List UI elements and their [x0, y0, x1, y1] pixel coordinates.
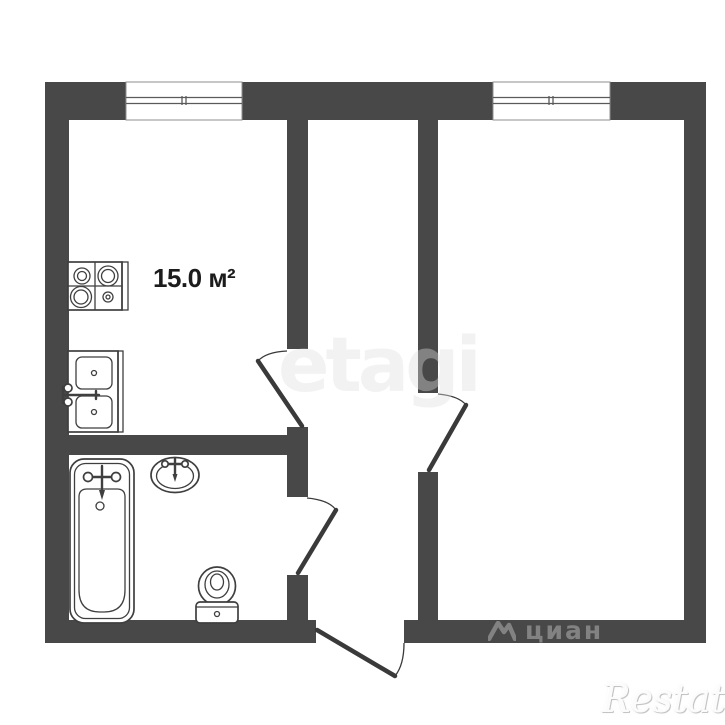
stove-icon [68, 262, 128, 310]
bathtub-icon [70, 459, 134, 623]
kitchen-sink-icon [63, 351, 123, 432]
wall-hall-room-upper [418, 120, 438, 393]
window-symbol-kitchen [126, 82, 242, 120]
wall-hall-room-lower [418, 472, 438, 620]
wall-bottom-right [404, 620, 706, 643]
wall-kitchen-hall-upper [287, 120, 308, 349]
wall-right [684, 120, 706, 643]
wall-left [45, 120, 69, 643]
toilet-icon [196, 567, 238, 623]
door-symbol-kitchen [258, 351, 302, 426]
wall-kitchen-hall-lower [287, 575, 308, 620]
washbasin-icon [151, 458, 199, 493]
door-symbol-entrance [317, 630, 404, 676]
wall-kitchen-hall-middle [287, 427, 308, 497]
kitchen-area-label: 15.0 м² [153, 263, 235, 294]
walls [45, 82, 706, 643]
door-symbol-room [429, 394, 466, 470]
door-symbol-bathroom [298, 498, 336, 573]
window-symbol-room [493, 82, 610, 120]
wall-kitchen-bathroom-divider [69, 435, 287, 455]
floor-plan: 15.0 м² etagi etagi циан циан Restate [0, 0, 725, 725]
floor-plan-drawing [0, 0, 725, 725]
